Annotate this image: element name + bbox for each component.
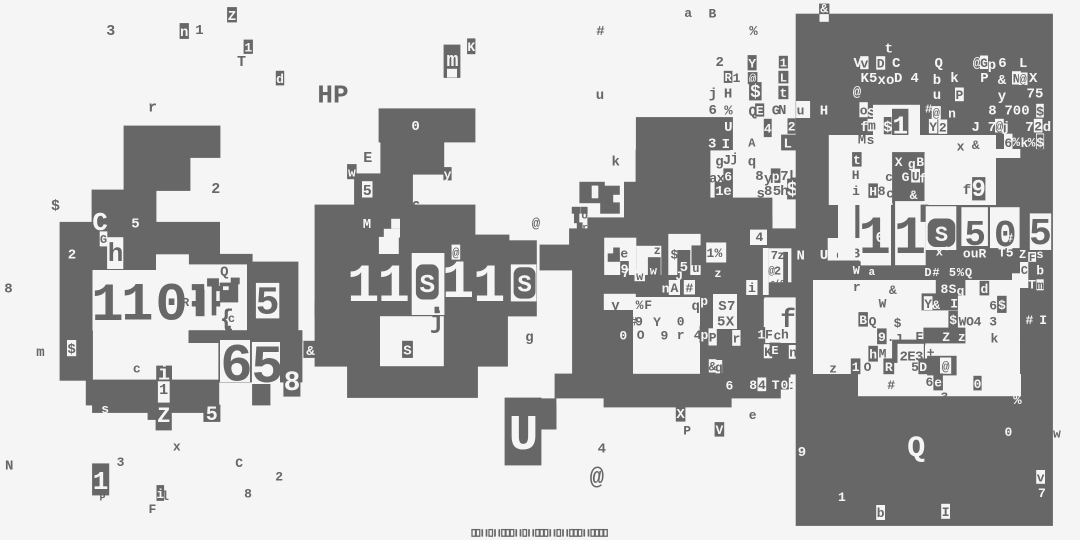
svg-text:Q: Q bbox=[934, 56, 942, 72]
svg-text:6: 6 bbox=[725, 379, 733, 394]
svg-text:$: $ bbox=[883, 120, 892, 137]
svg-text:9: 9 bbox=[971, 177, 985, 204]
svg-text:0: 0 bbox=[974, 377, 982, 392]
svg-text:k: k bbox=[950, 71, 958, 87]
svg-text:F: F bbox=[644, 298, 652, 313]
svg-text:1: 1 bbox=[733, 71, 741, 86]
svg-text:2: 2 bbox=[939, 120, 947, 135]
svg-text:S: S bbox=[517, 273, 531, 300]
svg-text:n: n bbox=[662, 282, 670, 297]
svg-text:S: S bbox=[403, 343, 411, 359]
svg-text:b: b bbox=[933, 73, 941, 89]
svg-text:K: K bbox=[467, 40, 475, 55]
svg-text:u: u bbox=[797, 104, 805, 119]
svg-text:C: C bbox=[1021, 264, 1028, 278]
svg-text:D: D bbox=[894, 71, 902, 87]
svg-text:m: m bbox=[36, 345, 44, 361]
svg-text:p: p bbox=[700, 328, 708, 343]
svg-text:r: r bbox=[677, 328, 685, 343]
svg-text:T5: T5 bbox=[998, 246, 1014, 261]
svg-text:r: r bbox=[732, 332, 740, 347]
svg-text:d: d bbox=[980, 282, 988, 297]
svg-text:S: S bbox=[935, 223, 948, 248]
svg-text:Z: Z bbox=[228, 9, 236, 25]
svg-text:3: 3 bbox=[989, 315, 997, 330]
svg-text:%: % bbox=[1013, 393, 1022, 409]
svg-text:3: 3 bbox=[106, 23, 115, 40]
svg-text:I: I bbox=[950, 297, 958, 312]
svg-text:r: r bbox=[148, 100, 157, 117]
svg-text:P: P bbox=[99, 494, 105, 505]
svg-text:7: 7 bbox=[1038, 486, 1046, 501]
svg-text:C: C bbox=[235, 456, 243, 471]
svg-text:1: 1 bbox=[159, 382, 168, 399]
svg-text:e: e bbox=[934, 376, 942, 391]
svg-text:w: w bbox=[636, 270, 644, 284]
svg-text:l: l bbox=[161, 489, 169, 504]
svg-text:$: $ bbox=[1036, 104, 1044, 119]
svg-text:U: U bbox=[820, 248, 828, 264]
svg-text:w: w bbox=[1053, 427, 1061, 442]
svg-text:R: R bbox=[885, 360, 893, 375]
svg-text:t: t bbox=[779, 86, 787, 101]
svg-text:n: n bbox=[180, 25, 188, 41]
svg-text:1: 1 bbox=[852, 360, 860, 375]
svg-text:x: x bbox=[173, 440, 181, 455]
svg-text:$: $ bbox=[1036, 136, 1044, 151]
svg-text:$: $ bbox=[670, 247, 678, 262]
svg-text:6: 6 bbox=[875, 230, 884, 247]
svg-text:8: 8 bbox=[284, 368, 301, 399]
svg-text:$: $ bbox=[51, 198, 60, 215]
svg-text:HP: HP bbox=[317, 81, 348, 111]
svg-text:7: 7 bbox=[1004, 104, 1012, 120]
svg-text:j: j bbox=[730, 151, 738, 166]
svg-text:c: c bbox=[133, 362, 141, 377]
svg-text:2: 2 bbox=[715, 55, 723, 71]
svg-text:N: N bbox=[796, 249, 804, 265]
svg-text:u: u bbox=[933, 88, 941, 104]
svg-text:#: # bbox=[685, 281, 693, 296]
svg-text:R: R bbox=[182, 296, 190, 310]
svg-text:4: 4 bbox=[755, 230, 763, 245]
svg-text:@: @ bbox=[853, 85, 862, 101]
svg-text:1: 1 bbox=[838, 490, 846, 505]
svg-text:6: 6 bbox=[724, 169, 732, 184]
svg-text:c: c bbox=[228, 312, 235, 326]
svg-text:X: X bbox=[676, 407, 685, 423]
svg-text:5: 5 bbox=[869, 71, 877, 87]
svg-text:e: e bbox=[749, 408, 757, 423]
svg-text:J: J bbox=[971, 120, 979, 136]
svg-text:b: b bbox=[1036, 264, 1044, 279]
svg-text:H: H bbox=[852, 168, 860, 183]
svg-text:P: P bbox=[683, 424, 691, 439]
svg-text:q: q bbox=[691, 299, 699, 315]
svg-text:Y: Y bbox=[929, 120, 937, 135]
svg-text:Y: Y bbox=[748, 56, 756, 71]
svg-text:p: p bbox=[772, 169, 780, 184]
svg-text:T: T bbox=[1028, 278, 1036, 293]
svg-text:e: e bbox=[620, 247, 628, 262]
svg-text:m: m bbox=[1036, 279, 1043, 293]
svg-text:5: 5 bbox=[1035, 87, 1043, 103]
svg-text:6: 6 bbox=[708, 103, 716, 119]
svg-text:r: r bbox=[853, 280, 861, 295]
svg-text:9: 9 bbox=[878, 330, 886, 345]
svg-text:Z: Z bbox=[942, 330, 950, 345]
svg-text:k: k bbox=[611, 155, 619, 171]
svg-text:q: q bbox=[1022, 334, 1030, 349]
svg-text:&: & bbox=[910, 188, 918, 203]
svg-text:%: % bbox=[1028, 136, 1036, 151]
svg-text:A: A bbox=[670, 281, 678, 296]
svg-text:L: L bbox=[1019, 56, 1027, 72]
svg-text:E: E bbox=[771, 344, 778, 358]
svg-text:5: 5 bbox=[911, 360, 919, 375]
svg-text:X: X bbox=[895, 155, 903, 170]
svg-text:2: 2 bbox=[774, 265, 781, 279]
svg-text:8: 8 bbox=[749, 378, 757, 393]
svg-text:O: O bbox=[637, 328, 645, 343]
svg-text:5: 5 bbox=[251, 338, 283, 399]
svg-text:F: F bbox=[765, 327, 773, 342]
svg-text:1: 1 bbox=[894, 209, 926, 270]
svg-text:D: D bbox=[924, 266, 931, 280]
svg-text:N: N bbox=[5, 459, 13, 475]
svg-text:m: m bbox=[868, 119, 876, 134]
svg-text:V: V bbox=[715, 423, 723, 438]
svg-text:M: M bbox=[363, 217, 371, 233]
svg-text:f: f bbox=[963, 183, 971, 199]
svg-text:4: 4 bbox=[910, 71, 918, 87]
svg-text:j: j bbox=[1002, 120, 1010, 136]
svg-text:0: 0 bbox=[1021, 104, 1029, 120]
svg-text:E: E bbox=[363, 150, 372, 167]
svg-text:T: T bbox=[237, 54, 246, 71]
svg-text:v: v bbox=[860, 56, 868, 71]
svg-text:&: & bbox=[972, 138, 980, 153]
svg-text:%: % bbox=[957, 266, 965, 280]
svg-text:a: a bbox=[684, 6, 692, 21]
svg-text:L: L bbox=[780, 71, 787, 85]
svg-text:&: & bbox=[889, 283, 897, 298]
svg-text:j: j bbox=[430, 309, 444, 336]
svg-text:C: C bbox=[892, 56, 901, 72]
svg-text:G: G bbox=[100, 233, 107, 247]
svg-text:5: 5 bbox=[255, 282, 279, 327]
svg-text:6: 6 bbox=[1004, 136, 1012, 151]
svg-text:1: 1 bbox=[473, 257, 505, 318]
svg-text:E: E bbox=[756, 104, 764, 119]
svg-text:2: 2 bbox=[1034, 119, 1042, 134]
svg-text:G: G bbox=[902, 170, 910, 185]
svg-text:z: z bbox=[958, 330, 966, 345]
svg-text:i: i bbox=[748, 281, 756, 296]
svg-text:H: H bbox=[869, 184, 877, 199]
svg-text:5: 5 bbox=[717, 315, 725, 331]
svg-text:4: 4 bbox=[758, 378, 766, 393]
svg-text:1: 1 bbox=[442, 253, 474, 314]
svg-text:1: 1 bbox=[347, 257, 379, 318]
svg-text:P: P bbox=[955, 88, 963, 103]
svg-text:2: 2 bbox=[788, 120, 796, 135]
svg-text:%: % bbox=[724, 104, 733, 120]
svg-text:$: $ bbox=[894, 316, 902, 331]
svg-text:d: d bbox=[276, 72, 284, 87]
svg-text:X: X bbox=[1029, 71, 1038, 87]
svg-text:8: 8 bbox=[4, 282, 12, 298]
svg-text:6: 6 bbox=[998, 56, 1006, 72]
svg-text:s: s bbox=[101, 402, 109, 417]
svg-text:h: h bbox=[781, 327, 789, 342]
svg-text:p: p bbox=[988, 58, 996, 74]
svg-text:w: w bbox=[650, 265, 658, 279]
svg-text:y: y bbox=[444, 167, 452, 182]
svg-text:M: M bbox=[858, 133, 866, 149]
svg-text:I: I bbox=[722, 137, 730, 153]
svg-text:4: 4 bbox=[764, 122, 772, 137]
svg-text:A: A bbox=[748, 137, 756, 151]
svg-text:R: R bbox=[724, 71, 732, 85]
svg-text:3: 3 bbox=[940, 390, 948, 405]
svg-text:7: 7 bbox=[727, 299, 735, 315]
svg-text:P: P bbox=[980, 71, 988, 87]
svg-text:6: 6 bbox=[925, 375, 933, 390]
svg-text:0: 0 bbox=[619, 328, 627, 343]
svg-text:1: 1 bbox=[93, 467, 109, 497]
svg-text:W: W bbox=[879, 297, 887, 312]
svg-text:n: n bbox=[948, 107, 956, 122]
svg-text:j: j bbox=[709, 87, 717, 103]
svg-text:x: x bbox=[957, 140, 965, 155]
svg-text:8: 8 bbox=[878, 184, 886, 199]
svg-text:w: w bbox=[348, 165, 356, 180]
svg-text:6: 6 bbox=[411, 199, 420, 216]
svg-text:#: # bbox=[1025, 313, 1033, 328]
svg-text:9: 9 bbox=[798, 445, 806, 461]
svg-text:L: L bbox=[783, 137, 791, 153]
svg-text:g: g bbox=[525, 330, 533, 346]
svg-text:e: e bbox=[723, 184, 731, 200]
svg-text:1: 1 bbox=[706, 246, 714, 261]
svg-text:W: W bbox=[853, 264, 861, 278]
svg-text:O: O bbox=[864, 360, 872, 375]
svg-text:7: 7 bbox=[622, 266, 630, 281]
svg-text:u: u bbox=[692, 262, 699, 276]
svg-text:z: z bbox=[654, 244, 661, 258]
svg-text:9: 9 bbox=[660, 329, 668, 344]
svg-text:&: & bbox=[932, 298, 940, 313]
svg-text:5: 5 bbox=[949, 266, 956, 280]
svg-text:1: 1 bbox=[195, 23, 203, 39]
svg-text:0: 0 bbox=[411, 119, 419, 135]
svg-text:k: k bbox=[990, 332, 998, 347]
svg-text:y: y bbox=[611, 299, 620, 315]
svg-text:5: 5 bbox=[363, 183, 372, 200]
svg-text:8: 8 bbox=[244, 487, 252, 502]
svg-text:h: h bbox=[108, 239, 124, 269]
svg-text:#: # bbox=[925, 103, 932, 117]
svg-text:5: 5 bbox=[131, 217, 139, 233]
svg-text:a: a bbox=[868, 267, 875, 279]
svg-text:6: 6 bbox=[220, 337, 252, 398]
svg-text:B: B bbox=[916, 155, 924, 170]
svg-text:I: I bbox=[1039, 313, 1047, 328]
svg-text:3: 3 bbox=[117, 455, 125, 470]
svg-text:&: & bbox=[306, 344, 315, 360]
svg-text:@: @ bbox=[942, 359, 950, 374]
svg-text:2: 2 bbox=[275, 470, 283, 485]
svg-text:7: 7 bbox=[1025, 120, 1033, 136]
svg-text:D: D bbox=[919, 360, 927, 375]
svg-text:X: X bbox=[726, 315, 735, 331]
svg-text:$: $ bbox=[67, 342, 75, 358]
svg-text:u: u bbox=[596, 88, 604, 104]
svg-text:Z: Z bbox=[1019, 248, 1026, 262]
svg-text:c: c bbox=[885, 170, 893, 185]
svg-text:p: p bbox=[700, 294, 708, 309]
svg-text:7: 7 bbox=[1026, 87, 1034, 103]
svg-text:#: # bbox=[1005, 231, 1013, 246]
svg-text:1: 1 bbox=[121, 276, 153, 337]
svg-text:F: F bbox=[1029, 253, 1036, 265]
svg-text:Q: Q bbox=[907, 432, 925, 466]
svg-text:S: S bbox=[718, 299, 726, 315]
svg-text:P: P bbox=[709, 331, 717, 346]
svg-text:v: v bbox=[1037, 471, 1045, 486]
svg-text:@: @ bbox=[590, 465, 604, 492]
svg-text:$: $ bbox=[949, 313, 957, 328]
svg-text:z: z bbox=[714, 267, 721, 281]
svg-text:S: S bbox=[419, 270, 435, 300]
svg-text:1: 1 bbox=[377, 257, 409, 318]
svg-text:o: o bbox=[581, 210, 588, 222]
svg-text:s: s bbox=[1036, 248, 1043, 262]
svg-text:i: i bbox=[852, 184, 860, 199]
svg-text:c: c bbox=[783, 358, 790, 372]
svg-text:b: b bbox=[877, 506, 885, 521]
svg-text:t: t bbox=[853, 153, 861, 168]
svg-text:%: % bbox=[636, 298, 644, 313]
svg-text:U: U bbox=[508, 408, 538, 465]
svg-text:s: s bbox=[867, 133, 875, 148]
svg-text:1: 1 bbox=[780, 56, 787, 70]
svg-text:H: H bbox=[724, 87, 732, 103]
svg-text:0: 0 bbox=[1004, 425, 1012, 440]
svg-text:$: $ bbox=[750, 83, 761, 103]
svg-text:o(0): o(0) bbox=[770, 280, 789, 289]
svg-text:$: $ bbox=[998, 298, 1006, 313]
svg-text:N: N bbox=[778, 103, 786, 119]
svg-text:T: T bbox=[772, 378, 780, 393]
svg-text:F: F bbox=[148, 502, 156, 517]
svg-text:U: U bbox=[724, 120, 732, 136]
svg-text:@: @ bbox=[532, 217, 541, 233]
svg-text:B: B bbox=[859, 313, 867, 328]
svg-text:8: 8 bbox=[764, 184, 772, 200]
svg-text:1: 1 bbox=[91, 276, 123, 337]
svg-text:Q: Q bbox=[220, 265, 228, 281]
svg-text:@: @ bbox=[1020, 73, 1027, 87]
svg-text:B: B bbox=[708, 7, 716, 22]
svg-text:#: # bbox=[932, 266, 939, 280]
svg-text:2: 2 bbox=[68, 248, 76, 264]
svg-text:Y: Y bbox=[924, 297, 932, 312]
svg-text:H: H bbox=[820, 104, 828, 120]
svg-text:Z: Z bbox=[157, 404, 170, 429]
svg-text:r: r bbox=[582, 223, 587, 233]
svg-text:4: 4 bbox=[974, 315, 982, 330]
svg-text:D: D bbox=[877, 57, 885, 72]
svg-text:I: I bbox=[942, 505, 950, 520]
svg-text:#: # bbox=[887, 378, 895, 393]
svg-text:8: 8 bbox=[988, 104, 996, 120]
svg-text:Q: Q bbox=[869, 315, 877, 330]
svg-text:z: z bbox=[829, 362, 837, 377]
svg-text:x': x' bbox=[936, 246, 950, 260]
svg-text:ouR: ouR bbox=[963, 247, 987, 262]
svg-text:0: 0 bbox=[1013, 104, 1021, 120]
svg-text:#: # bbox=[596, 24, 604, 40]
svg-text:6: 6 bbox=[989, 299, 997, 314]
svg-text:q: q bbox=[715, 360, 723, 375]
svg-text:2: 2 bbox=[211, 181, 220, 198]
svg-text:%: % bbox=[714, 246, 722, 261]
svg-text:%: % bbox=[749, 24, 758, 40]
svg-text:4: 4 bbox=[598, 442, 606, 458]
svg-text:3: 3 bbox=[708, 137, 716, 153]
svg-text:8: 8 bbox=[755, 169, 763, 185]
svg-text:Q: Q bbox=[965, 266, 972, 280]
svg-text:%: % bbox=[1012, 135, 1020, 150]
svg-text:&: & bbox=[998, 73, 1007, 89]
svg-text:5: 5 bbox=[206, 404, 218, 427]
